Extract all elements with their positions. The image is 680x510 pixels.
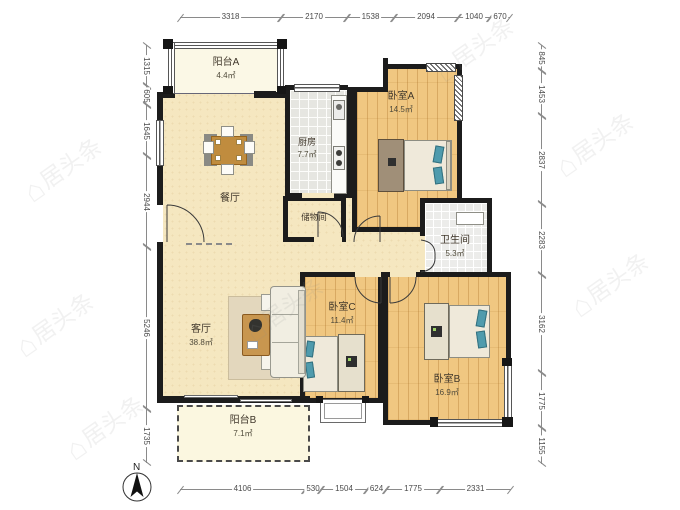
dim-bottom-3: 1504 [321,489,367,490]
kitchen-window [294,84,340,92]
wall-post [277,39,287,49]
watermark: ⌂居头条 [15,128,110,210]
dim-label: 1453 [537,83,545,105]
balcony-a-label: 阳台A 4.4㎡ [213,56,240,81]
dim-label: 670 [491,13,508,21]
bedroom-c-door-opening [355,272,381,277]
dim-left-2: 605 [146,86,147,105]
dim-right-2: 1453 [541,71,542,116]
bedroom-b-corner-window-bottom [436,419,506,427]
dim-label: 1315 [142,55,150,77]
stove-burner-icon [336,160,342,166]
wall-post [430,417,438,427]
dim-top-1: 3318 [180,17,281,18]
balcony-b-sliding-door [184,395,238,398]
wall-post [362,396,369,403]
dim-left-1: 1315 [146,45,147,86]
table-plate [215,155,221,161]
wall-post [277,86,286,94]
dim-left-3: 1645 [146,105,147,156]
wardrobe-handle-icon [388,158,396,166]
bedroom-b-corner-window-right [504,364,512,421]
house-logo-icon: ⌂ [549,147,583,184]
dim-label: 1155 [537,435,545,456]
dining-window-left [156,120,164,166]
dim-right-1: 845 [541,45,542,71]
bed-headboard [446,141,451,190]
floor-plan-canvas: 3318 2170 1538 2094 1040 670 4106 530 15… [0,0,680,510]
kitchen-door-opening [302,193,334,198]
dim-label: 1040 [463,13,485,21]
dim-right-4: 2283 [541,204,542,275]
bedroom-b-door-opening [390,272,416,277]
dim-bottom-6: 2331 [440,489,511,490]
wall-post [316,396,323,403]
ceiling-beam-dashed [186,243,232,245]
bedroom-c-bay-window [320,399,366,423]
kitchen-sink [333,100,345,120]
dining-chair [203,141,214,154]
dim-label: 2331 [465,485,487,493]
dim-bottom-5: 1775 [386,489,440,490]
wall-post [502,417,513,427]
stove-burner-icon [336,150,342,156]
dim-label: 3318 [220,13,242,21]
bedroom-a-window-right [454,75,463,121]
balcony-b-label: 阳台B 7.1㎡ [230,414,257,439]
balcony-a-door-stop [254,91,276,98]
table-plate [236,155,242,161]
dim-left-5: 5246 [146,247,147,409]
dim-label: 2283 [537,229,545,251]
dining-door-opening [157,205,163,242]
dim-top-6: 670 [490,17,510,18]
dim-bottom-2: 530 [305,489,321,490]
wall-post [502,358,512,366]
wall-post [163,86,173,94]
watermark: ⌂居头条 [7,283,102,365]
table-plate [236,139,242,145]
dim-label: 1504 [333,485,355,493]
dim-top-3: 1538 [347,17,394,18]
storage-label: 储物间 [301,212,327,224]
dim-left-4: 2944 [146,156,147,247]
watermark: ⌂居头条 [547,103,642,185]
sofa-cushion-line [272,342,298,343]
bedroom-a-window-top [426,63,456,72]
table-plate [215,139,221,145]
wall-post [163,39,173,49]
bathroom-washbasin [456,212,484,225]
dim-label: 3162 [537,313,545,335]
dim-bottom-1: 4106 [180,489,305,490]
tv-icon [346,356,357,367]
dining-label: 餐厅 [220,192,240,206]
dim-left-6: 1735 [146,409,147,463]
dim-label: 4106 [232,485,254,493]
tv-icon [431,326,442,337]
table-book [247,341,258,349]
dim-right-5: 3162 [541,275,542,373]
dim-label: 2170 [303,13,325,21]
living-label: 客厅 38.8㎡ [189,323,213,348]
dim-top-5: 1040 [458,17,490,18]
dim-label: 1775 [402,485,424,493]
dining-chair [221,164,234,175]
bedroom-c-label: 卧室C 11.4㎡ [328,301,355,326]
sink-faucet-icon [336,104,342,110]
house-logo-icon: ⌂ [564,287,598,324]
sofa-cushion-line [272,314,298,315]
dim-label: 2094 [415,13,437,21]
bathroom-door-opening [420,236,425,270]
bathroom-label: 卫生间 5.3㎡ [440,234,470,259]
compass-north-label: N [133,462,140,473]
bedroom-b-label: 卧室B 16.9㎡ [434,373,461,398]
dining-chair [221,126,234,137]
dim-top-4: 2094 [394,17,458,18]
watermark: ⌂居头条 [562,243,657,325]
kitchen-label: 厨房 7.7㎡ [297,136,316,160]
dim-label: 2944 [142,191,150,213]
bedroom-a-bed [404,140,452,191]
dim-label: 1645 [142,120,150,142]
balcony-a-window-top [168,42,284,49]
dim-label: 1775 [537,390,545,412]
house-logo-icon: ⌂ [9,327,43,364]
sofa-side-table [261,294,271,311]
dim-label: 1538 [360,13,382,21]
dim-label: 845 [537,49,545,66]
dim-label: 2837 [537,149,545,171]
balcony-b-sliding-door [240,399,292,402]
dim-top-2: 2170 [281,17,347,18]
bedroom-a-step-notch [348,58,388,92]
sofa-backrest [298,290,305,374]
dim-right-6: 1775 [541,373,542,428]
dim-bottom-4: 624 [367,489,386,490]
house-logo-icon: ⌂ [17,172,51,209]
house-logo-icon: ⌂ [59,430,93,467]
dim-label: 5246 [142,317,150,339]
storage-door-opening [314,237,342,242]
dining-chair [244,141,255,154]
dim-right-3: 2837 [541,116,542,204]
compass-icon [123,473,151,501]
dim-right-7: 1155 [541,428,542,464]
bedroom-a-label: 卧室A 14.5㎡ [388,90,415,115]
dim-label: 624 [368,485,385,493]
watermark: ⌂居头条 [57,386,152,468]
dim-label: 1735 [142,425,150,447]
